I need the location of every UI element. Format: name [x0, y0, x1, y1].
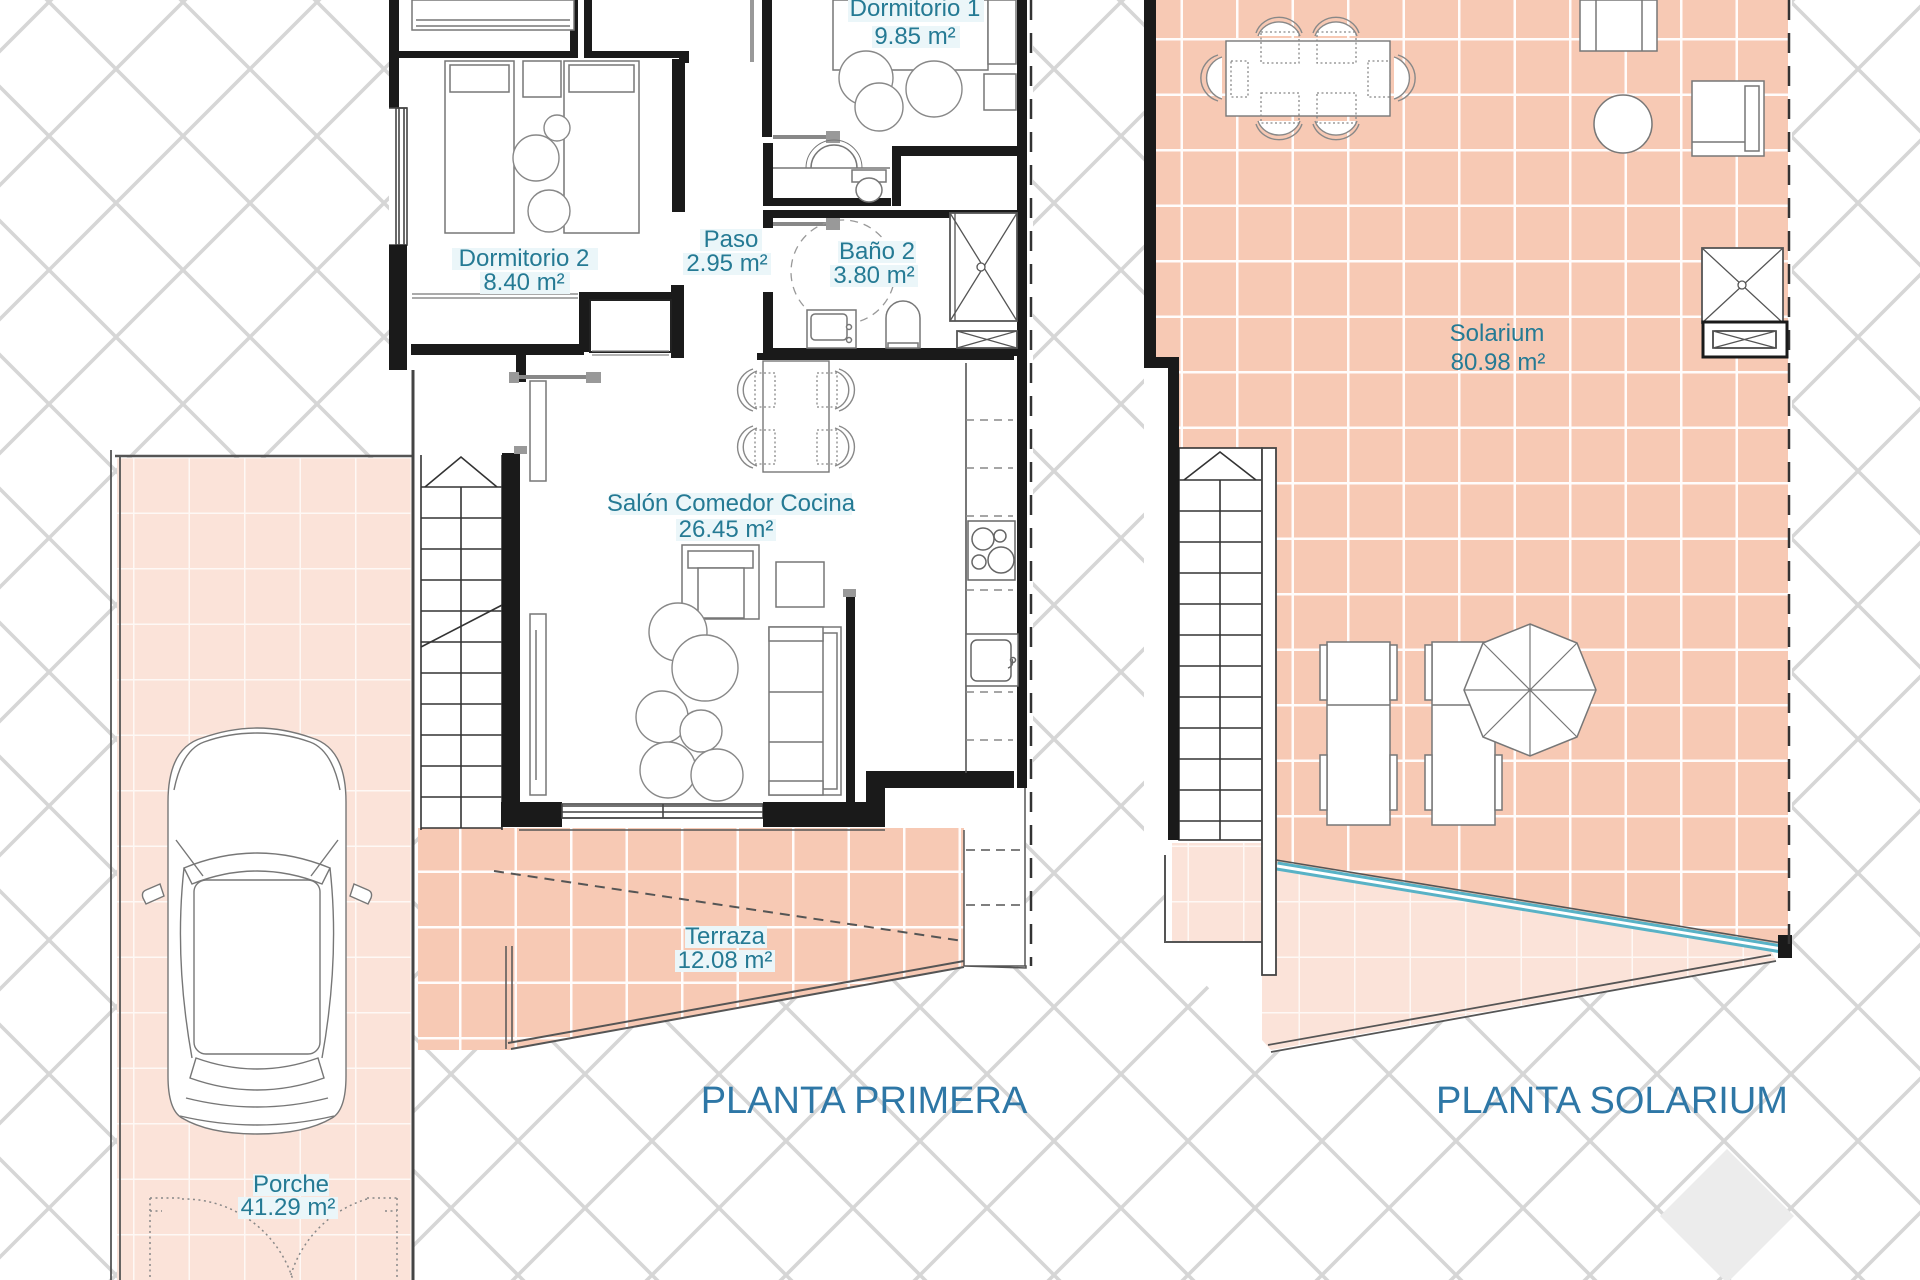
svg-text:12.08 m²: 12.08 m²: [678, 947, 773, 974]
svg-text:9.85 m²: 9.85 m²: [874, 23, 955, 50]
svg-text:80.98 m²: 80.98 m²: [1451, 349, 1546, 376]
svg-text:PLANTA PRIMERA: PLANTA PRIMERA: [701, 1080, 1028, 1122]
svg-text:Paso: Paso: [704, 226, 759, 253]
svg-text:Salón Comedor Cocina: Salón Comedor Cocina: [607, 490, 856, 517]
svg-text:Solarium: Solarium: [1450, 320, 1545, 347]
svg-text:Dormitorio 2: Dormitorio 2: [459, 245, 590, 272]
svg-text:Terraza: Terraza: [685, 923, 766, 950]
svg-text:Baño 2: Baño 2: [839, 238, 915, 265]
svg-text:26.45 m²: 26.45 m²: [679, 516, 774, 543]
svg-text:PLANTA SOLARIUM: PLANTA SOLARIUM: [1436, 1080, 1788, 1122]
svg-text:8.40 m²: 8.40 m²: [483, 269, 564, 296]
svg-text:2.95 m²: 2.95 m²: [686, 250, 767, 277]
svg-text:3.80 m²: 3.80 m²: [833, 262, 914, 289]
svg-text:41.29 m²: 41.29 m²: [241, 1194, 336, 1221]
svg-text:Dormitorio 1: Dormitorio 1: [850, 0, 981, 22]
